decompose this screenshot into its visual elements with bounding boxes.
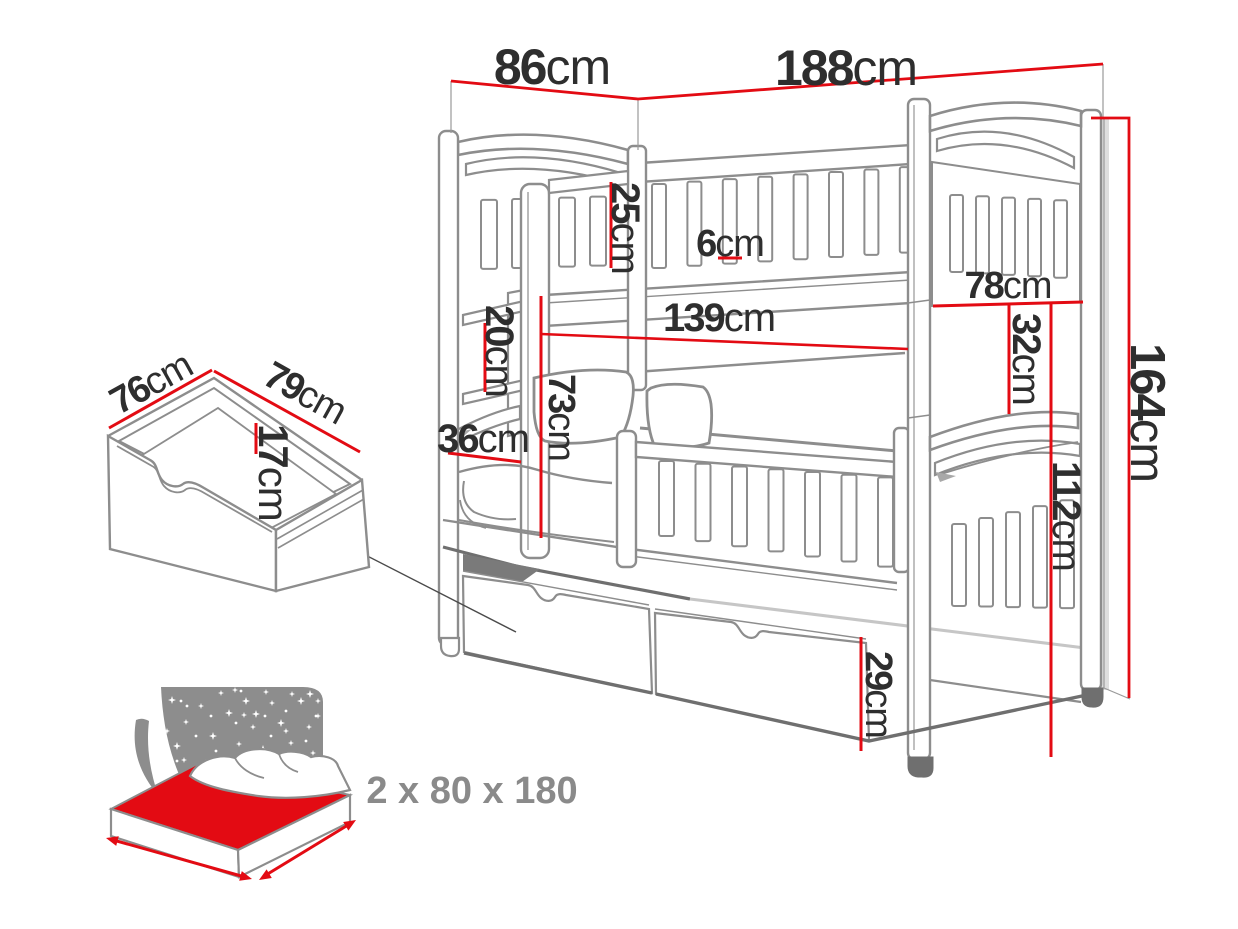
svg-text:32cm: 32cm: [1004, 313, 1048, 405]
svg-text:112cm: 112cm: [1044, 461, 1088, 571]
svg-text:73cm: 73cm: [540, 374, 582, 461]
svg-text:2 x 80 x 180: 2 x 80 x 180: [366, 770, 577, 812]
svg-text:29cm: 29cm: [857, 651, 899, 738]
svg-text:17cm: 17cm: [250, 424, 297, 521]
svg-text:78cm: 78cm: [965, 265, 1052, 307]
svg-text:164cm: 164cm: [1120, 343, 1174, 482]
svg-text:86cm: 86cm: [494, 39, 610, 95]
svg-text:6cm: 6cm: [696, 223, 764, 265]
svg-text:20cm: 20cm: [477, 305, 521, 397]
svg-text:139cm: 139cm: [663, 296, 775, 340]
svg-text:36cm: 36cm: [437, 417, 529, 461]
svg-text:188cm: 188cm: [775, 40, 917, 96]
svg-text:25cm: 25cm: [603, 182, 647, 274]
